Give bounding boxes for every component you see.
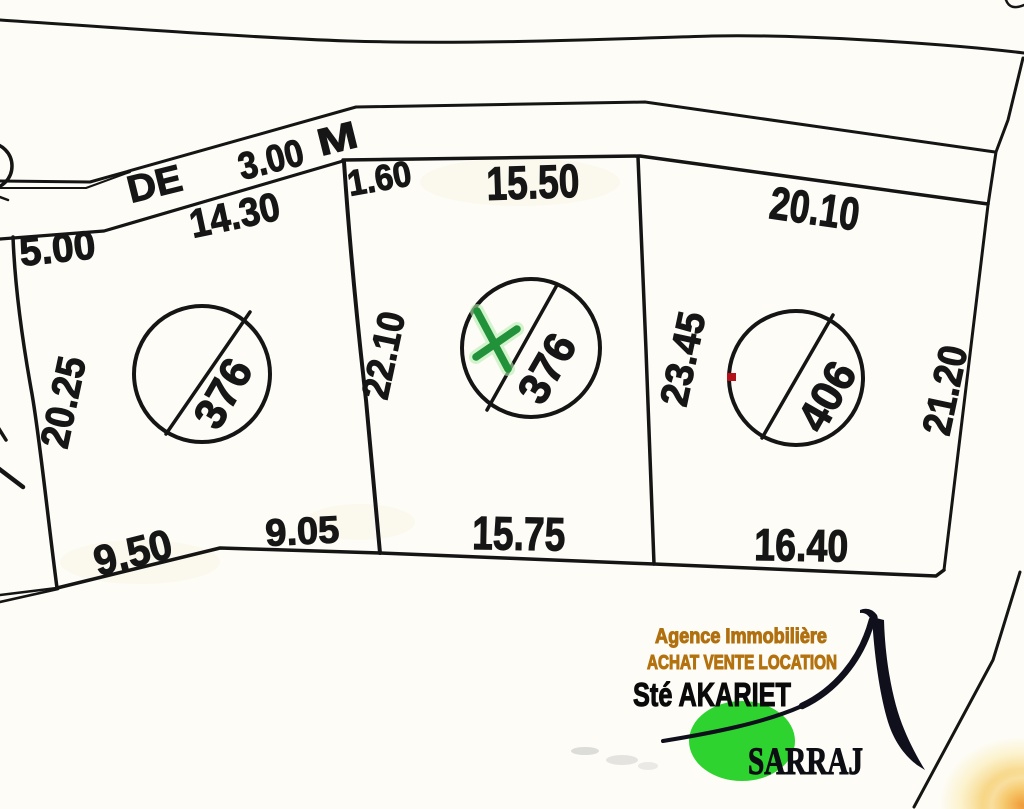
svg-text:SARRAJ: SARRAJ	[748, 740, 863, 783]
svg-text:15.50: 15.50	[485, 154, 580, 210]
svg-text:Agence Immobilière: Agence Immobilière	[655, 625, 827, 648]
svg-text:16.40: 16.40	[754, 519, 849, 572]
svg-text:Sté AKARIET: Sté AKARIET	[633, 676, 791, 713]
svg-text:9.05: 9.05	[264, 509, 340, 555]
svg-text:15.75: 15.75	[472, 506, 566, 561]
svg-text:ACHAT VENTE LOCATION: ACHAT VENTE LOCATION	[647, 652, 837, 674]
svg-text:5.00: 5.00	[17, 223, 97, 275]
